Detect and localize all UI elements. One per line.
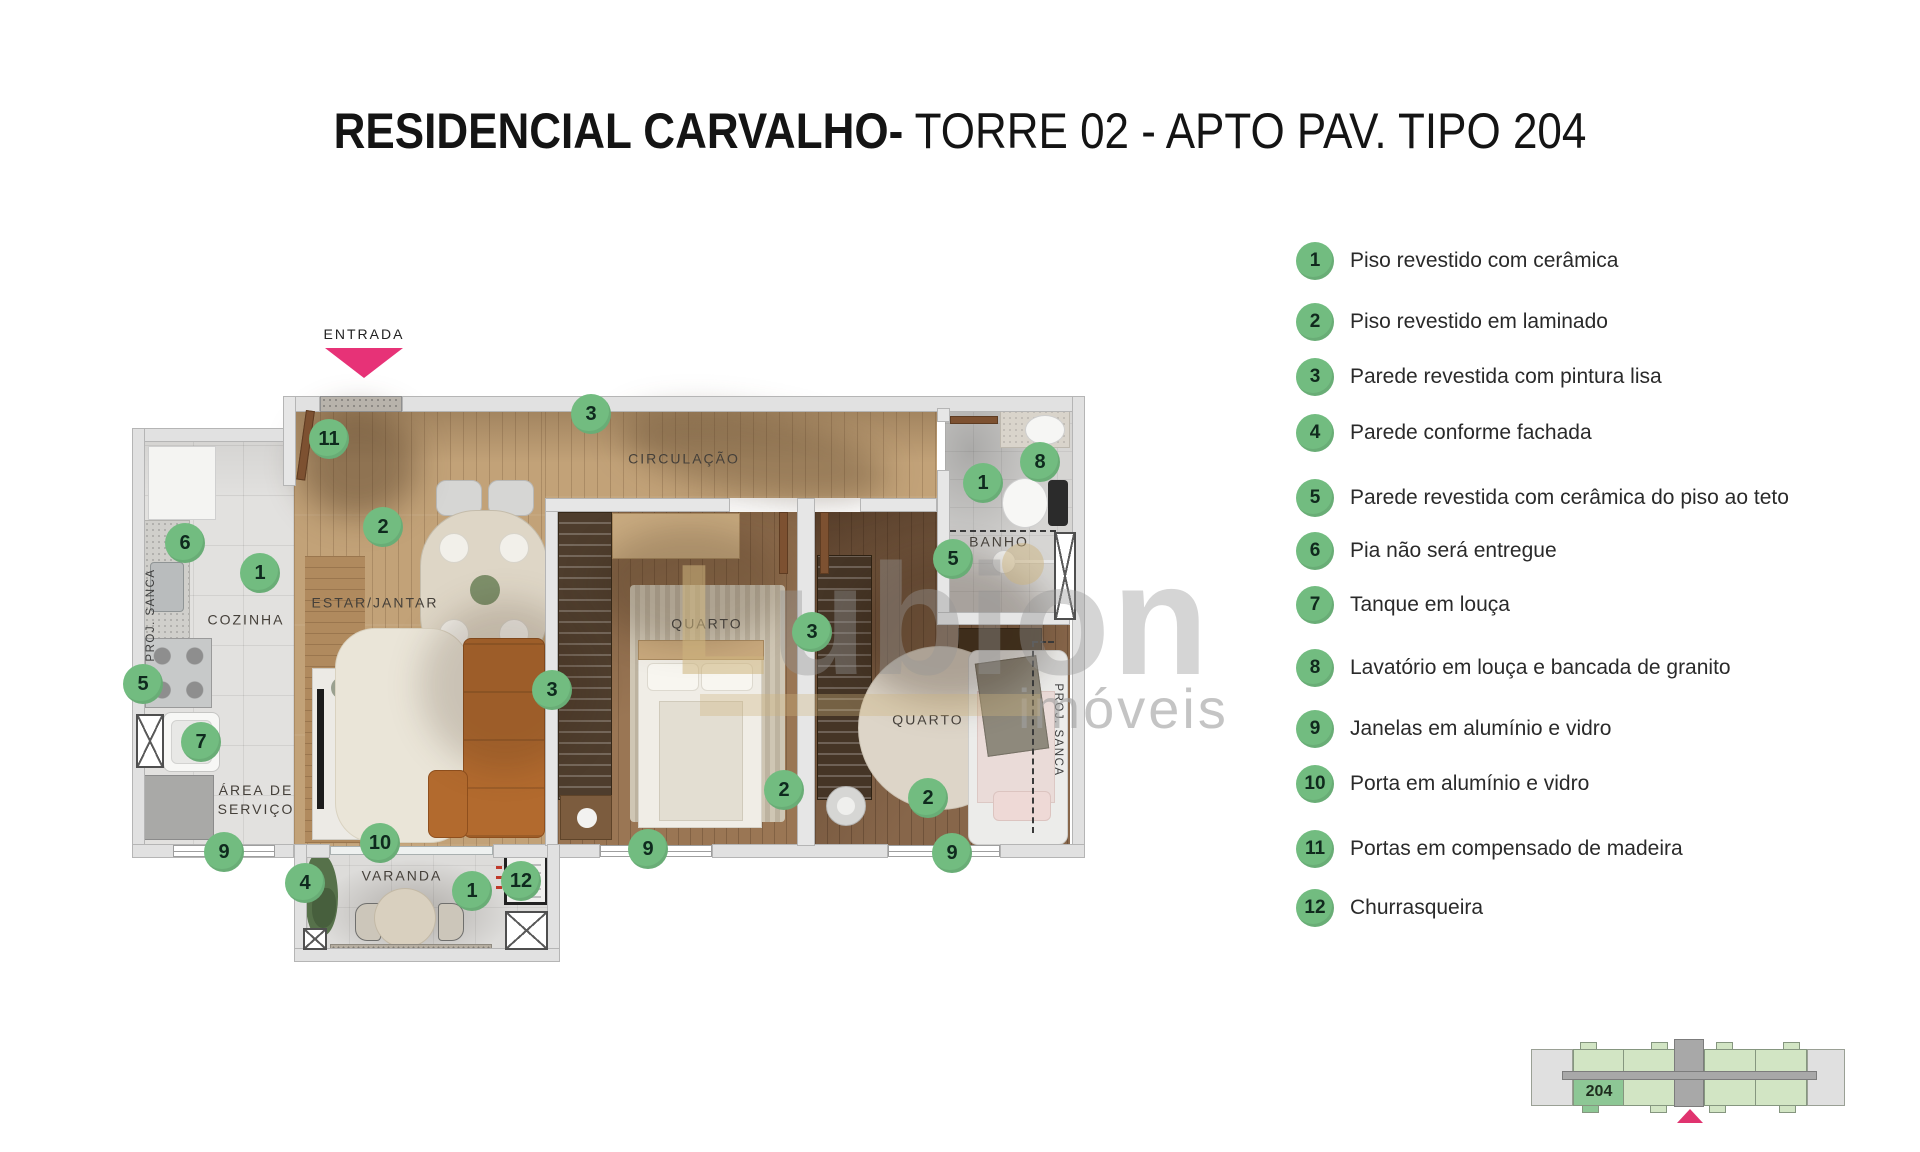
nightstand-decor: [577, 808, 597, 828]
plan-badge-1: 1: [240, 553, 280, 593]
keyplan-notch: [1783, 1042, 1800, 1050]
legend-label-2: Piso revestido em laminado: [1350, 310, 1608, 334]
room-label-cozinha: COZINHA: [208, 611, 285, 630]
bed2-throw: [975, 655, 1049, 757]
shower-rail: [1014, 560, 1056, 563]
proj-sanca-label-right: PROJ. SANCA: [1052, 683, 1064, 776]
balcony-chair: [438, 903, 464, 941]
wall-segment: [1000, 844, 1085, 858]
wall-segment: [283, 396, 296, 486]
plan-badge-2: 2: [363, 507, 403, 547]
keyplan-unit: [1623, 1078, 1675, 1106]
plan-badge-3: 3: [571, 394, 611, 434]
legend-number-2: 2: [1296, 303, 1334, 341]
wall-segment: [132, 428, 294, 442]
shaft-box: [1054, 532, 1076, 620]
legend-label-4: Parede conforme fachada: [1350, 421, 1592, 445]
plate: [499, 533, 529, 563]
plan-badge-9: 9: [932, 833, 972, 873]
bed-headboard: [638, 640, 764, 660]
proj-sanca-label-left: PROJ. SANCA: [145, 568, 157, 661]
bed2-pillow: [993, 791, 1051, 821]
keyplan-notch: [1709, 1105, 1726, 1113]
bed-blanket: [659, 701, 743, 821]
keyplan-unit: [1755, 1078, 1807, 1106]
wall-segment: [547, 844, 560, 962]
banho-door-leaf: [950, 416, 998, 424]
shaft-box: [136, 714, 164, 768]
table-centerpiece-plant: [470, 575, 500, 605]
pillow: [647, 663, 699, 691]
legend-number-9: 9: [1296, 710, 1334, 748]
legend-label-12: Churrasqueira: [1350, 896, 1483, 920]
shaft-box: [303, 928, 327, 950]
plan-badge-9: 9: [204, 832, 244, 872]
plan-badge-4: 4: [285, 863, 325, 903]
floorplan-sheet: RESIDENCIAL CARVALHO- TORRE 02 - APTO PA…: [0, 0, 1920, 1152]
legend-number-8: 8: [1296, 649, 1334, 687]
wall-segment: [937, 408, 950, 422]
legend-label-11: Portas em compensado de madeira: [1350, 837, 1683, 861]
proj-sanca-line: [1032, 641, 1034, 833]
legend-number-6: 6: [1296, 532, 1334, 570]
shower-head: [992, 550, 1016, 574]
nightstand-quarto1: [560, 795, 612, 840]
plan-badge-5: 5: [933, 539, 973, 579]
keyplan-notch: [1716, 1042, 1733, 1050]
plan-badge-2: 2: [764, 770, 804, 810]
bathroom-sink: [1025, 415, 1065, 445]
quarto2-door-leaf: [820, 512, 829, 574]
plan-badge-3: 3: [532, 670, 572, 710]
wardrobe-quarto1: [558, 512, 612, 800]
plan-badge-7: 7: [181, 722, 221, 762]
legend-label-9: Janelas em alumínio e vidro: [1350, 717, 1611, 741]
room-label-quarto-1: QUARTO: [671, 615, 742, 634]
plan-badge-6: 6: [165, 523, 205, 563]
plan-badge-2: 2: [908, 778, 948, 818]
legend-label-1: Piso revestido com cerâmica: [1350, 249, 1618, 273]
room-label-banho: BANHO: [969, 533, 1029, 552]
legend-number-3: 3: [1296, 358, 1334, 396]
legend-number-7: 7: [1296, 586, 1334, 624]
toilet-bowl: [1002, 478, 1048, 528]
wall-segment: [132, 428, 145, 858]
plan-badge-1: 1: [452, 871, 492, 911]
sofa: [463, 638, 545, 838]
plan-badge-11: 11: [309, 419, 349, 459]
plan-badge-8: 8: [1020, 442, 1060, 482]
entry-threshold: [320, 396, 402, 412]
plan-badge-1: 1: [963, 463, 1003, 503]
legend-label-7: Tanque em louça: [1350, 593, 1510, 617]
bed-quarto1: [638, 640, 762, 828]
keyplan-notch: [1650, 1105, 1667, 1113]
plan-badge-10: 10: [360, 823, 400, 863]
legend-number-10: 10: [1296, 765, 1334, 803]
sofa-chaise: [428, 770, 468, 838]
keyplan-notch: [1582, 1105, 1599, 1113]
balcony-table: [374, 888, 436, 948]
kitchen-cabinet: [148, 446, 216, 520]
wall-segment: [545, 498, 730, 512]
legend-label-10: Porta em alumínio e vidro: [1350, 772, 1589, 796]
proj-sanca-line: [1032, 641, 1054, 643]
dresser-quarto1: [612, 513, 740, 559]
keyplan-unit: [1704, 1078, 1756, 1106]
legend-number-5: 5: [1296, 479, 1334, 517]
wall-segment: [402, 396, 1085, 412]
wall-segment: [712, 844, 888, 858]
plan-badge-5: 5: [123, 664, 163, 704]
entrance-arrow-icon: [325, 348, 403, 378]
shaft-box: [505, 911, 548, 950]
balcony-glass-door: [330, 846, 493, 855]
pillow: [701, 663, 753, 691]
keyplan-unit-label: 204: [1586, 1083, 1613, 1101]
wall-segment: [1072, 396, 1085, 858]
plate: [439, 533, 469, 563]
wardrobe-quarto2: [817, 555, 872, 800]
room-label-varanda: VARANDA: [362, 867, 443, 886]
keyplan-notch: [1651, 1042, 1668, 1050]
wall-segment: [860, 498, 937, 512]
washer-space: [143, 775, 214, 840]
plan-badge-12: 12: [501, 861, 541, 901]
plan-badge-9: 9: [628, 829, 668, 869]
room-label-area-servico: ÁREA DE SERVIÇO: [218, 781, 295, 819]
wall-segment: [937, 612, 1070, 625]
keyplan-corridor: [1562, 1071, 1817, 1080]
side-table-quarto2: [826, 786, 866, 826]
room-label-quarto-2: QUARTO: [892, 711, 963, 730]
page-title-regular: TORRE 02 - APTO PAV. TIPO 204: [903, 103, 1586, 159]
toilet-tank: [1048, 480, 1068, 526]
page-title-bold: RESIDENCIAL CARVALHO-: [334, 103, 904, 159]
keyplan-notch: [1779, 1105, 1796, 1113]
grill-tick: [496, 866, 502, 869]
keyplan-arrow-icon: [1677, 1109, 1703, 1123]
legend-label-6: Pia não será entregue: [1350, 539, 1557, 563]
room-label-circulacao: CIRCULAÇÃO: [628, 450, 740, 469]
legend-number-12: 12: [1296, 889, 1334, 927]
keyplan-notch: [1580, 1042, 1597, 1050]
room-label-estar-jantar: ESTAR/JANTAR: [312, 594, 439, 613]
legend-label-5: Parede revestida com cerâmica do piso ao…: [1350, 486, 1789, 510]
legend-label-3: Parede revestida com pintura lisa: [1350, 365, 1662, 389]
side-table-top: [837, 797, 855, 815]
plan-badge-3: 3: [792, 612, 832, 652]
legend-label-8: Lavatório em louça e bancada de granito: [1350, 656, 1731, 680]
quarto1-door-leaf: [779, 512, 788, 574]
legend-number-1: 1: [1296, 242, 1334, 280]
legend-number-4: 4: [1296, 414, 1334, 452]
tv-screen: [317, 689, 324, 809]
entrance-label: ENTRADA: [324, 326, 405, 342]
wall-segment: [294, 948, 560, 962]
legend-number-11: 11: [1296, 830, 1334, 868]
page-title: RESIDENCIAL CARVALHO- TORRE 02 - APTO PA…: [115, 104, 1805, 158]
